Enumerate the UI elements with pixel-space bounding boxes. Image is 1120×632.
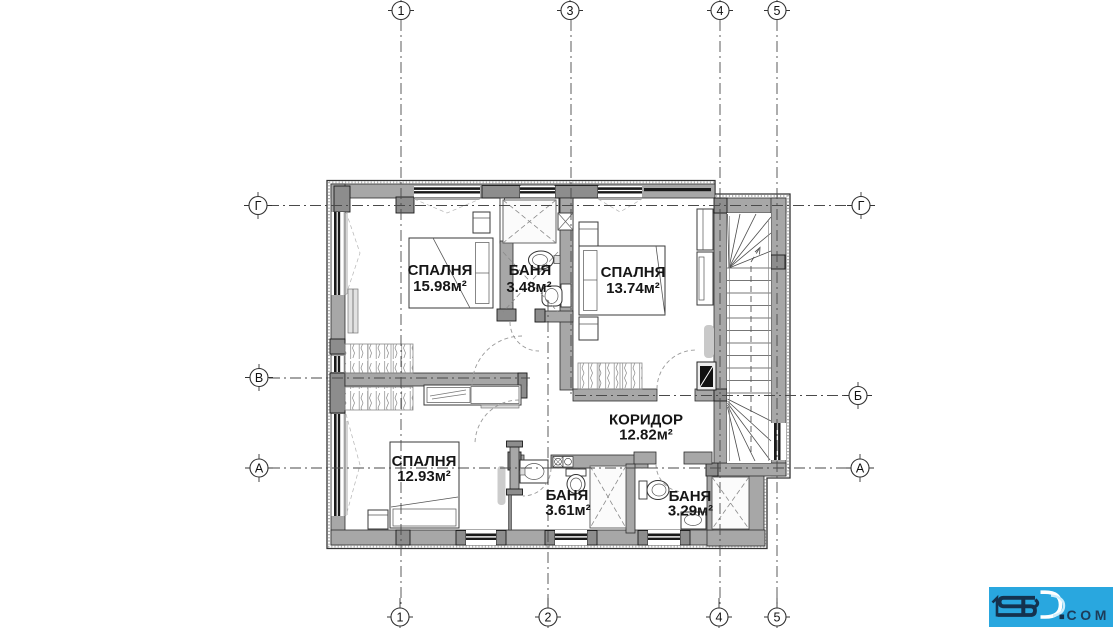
svg-text:В: В (255, 371, 263, 385)
svg-text:4: 4 (717, 4, 724, 18)
svg-text:12.82м²: 12.82м² (619, 427, 673, 444)
svg-text:5: 5 (774, 611, 781, 625)
svg-text:Б: Б (854, 389, 862, 403)
svg-text:1: 1 (398, 4, 405, 18)
svg-text:1: 1 (397, 611, 404, 625)
svg-text:А: А (856, 462, 865, 476)
svg-text:А: А (255, 462, 264, 476)
svg-text:БАНЯ: БАНЯ (509, 262, 552, 279)
svg-text:3: 3 (567, 4, 574, 18)
svg-text:12.93м²: 12.93м² (397, 468, 451, 485)
svg-text:3.48м²: 3.48м² (506, 279, 551, 296)
svg-text:Г: Г (858, 199, 865, 213)
svg-text:2: 2 (545, 611, 552, 625)
svg-text:3.61м²: 3.61м² (545, 502, 590, 519)
svg-text:15.98м²: 15.98м² (413, 278, 467, 295)
svg-text:Г: Г (255, 199, 262, 213)
svg-text:COM: COM (1067, 607, 1110, 623)
svg-text:СПАЛНЯ: СПАЛНЯ (408, 262, 473, 279)
svg-text:СПАЛНЯ: СПАЛНЯ (601, 264, 666, 281)
svg-text:5: 5 (774, 4, 781, 18)
svg-text:13.74м²: 13.74м² (606, 280, 660, 297)
svg-text:4: 4 (716, 611, 723, 625)
svg-text:3.29м²: 3.29м² (668, 503, 713, 520)
